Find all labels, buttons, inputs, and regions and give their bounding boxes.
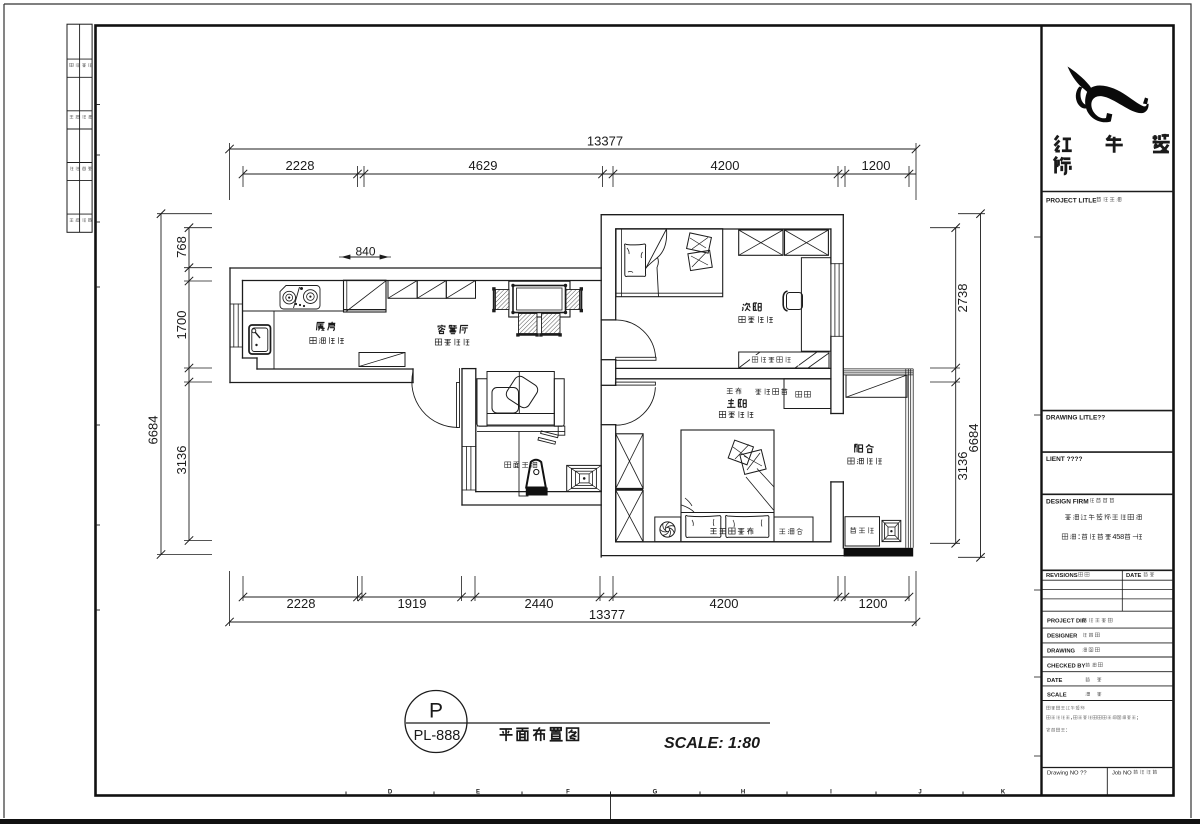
svg-text:LIENT ????: LIENT ???? bbox=[1046, 456, 1082, 463]
svg-text:Drawing NO ??: Drawing NO ?? bbox=[1047, 771, 1087, 777]
svg-text:2738: 2738 bbox=[955, 284, 970, 313]
svg-text:4629: 4629 bbox=[469, 158, 498, 173]
svg-text:P: P bbox=[429, 700, 443, 723]
svg-text:DATE: DATE bbox=[1047, 678, 1062, 684]
svg-text:2440: 2440 bbox=[525, 596, 554, 611]
svg-text:K: K bbox=[1001, 790, 1006, 796]
svg-text:；: ； bbox=[1136, 716, 1141, 721]
svg-text:13377: 13377 bbox=[587, 134, 623, 149]
svg-text:1919: 1919 bbox=[398, 596, 427, 611]
svg-text:：: ： bbox=[1077, 532, 1084, 541]
svg-text:H: H bbox=[741, 790, 745, 796]
svg-text:REVISIONS: REVISIONS bbox=[1046, 573, 1078, 579]
svg-text:3136: 3136 bbox=[955, 452, 970, 481]
svg-text:Job NO: Job NO bbox=[1112, 771, 1132, 777]
svg-text:－: － bbox=[1132, 532, 1139, 541]
svg-text:F: F bbox=[566, 790, 570, 796]
svg-text:SCALE: SCALE bbox=[1047, 693, 1067, 699]
svg-text:DESIGNER: DESIGNER bbox=[1047, 634, 1078, 640]
svg-text:：: ： bbox=[1066, 729, 1071, 734]
svg-text:PL-888: PL-888 bbox=[414, 728, 461, 744]
svg-text:CHECKED BY: CHECKED BY bbox=[1047, 663, 1085, 669]
svg-text:6684: 6684 bbox=[146, 416, 161, 445]
svg-text:1700: 1700 bbox=[174, 311, 189, 340]
svg-text:DRAWING: DRAWING bbox=[1047, 648, 1076, 654]
svg-text:1200: 1200 bbox=[862, 158, 891, 173]
svg-text:G: G bbox=[653, 790, 658, 796]
svg-text:768: 768 bbox=[174, 236, 189, 258]
svg-text:8: 8 bbox=[1120, 532, 1124, 541]
svg-text:4200: 4200 bbox=[711, 158, 740, 173]
svg-text:DESIGN FIRM: DESIGN FIRM bbox=[1046, 498, 1089, 505]
svg-text:PROJECT LITLE: PROJECT LITLE bbox=[1046, 198, 1097, 205]
svg-text:1200: 1200 bbox=[859, 596, 888, 611]
svg-text:PROJECT DIR: PROJECT DIR bbox=[1047, 619, 1087, 625]
svg-text:DATE: DATE bbox=[1126, 573, 1141, 579]
svg-text:13377: 13377 bbox=[589, 607, 625, 622]
svg-text:2228: 2228 bbox=[287, 596, 316, 611]
svg-text:840: 840 bbox=[355, 245, 375, 259]
svg-text:6684: 6684 bbox=[966, 424, 981, 453]
svg-text:DRAWING LITLE??: DRAWING LITLE?? bbox=[1046, 415, 1105, 422]
svg-text:，: ， bbox=[1070, 716, 1075, 721]
svg-text:E: E bbox=[476, 790, 480, 796]
svg-text:J: J bbox=[918, 790, 921, 796]
svg-text:2228: 2228 bbox=[286, 158, 315, 173]
svg-text:4200: 4200 bbox=[710, 596, 739, 611]
svg-text:SCALE: 1:80: SCALE: 1:80 bbox=[664, 735, 760, 752]
svg-text:D: D bbox=[388, 790, 393, 796]
svg-text:3136: 3136 bbox=[174, 446, 189, 475]
